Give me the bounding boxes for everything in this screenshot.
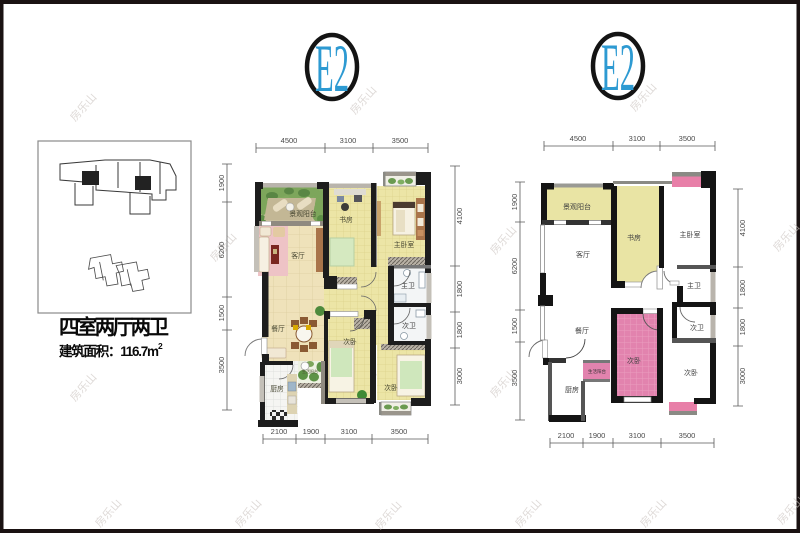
svg-text:厨房: 厨房 xyxy=(565,385,579,394)
svg-text:1900: 1900 xyxy=(217,175,226,192)
svg-text:主卫: 主卫 xyxy=(687,281,701,290)
svg-text:3000: 3000 xyxy=(455,368,464,385)
svg-text:次卧: 次卧 xyxy=(384,383,398,392)
svg-text:1900: 1900 xyxy=(589,431,606,440)
svg-text:主卧室: 主卧室 xyxy=(680,230,701,239)
svg-text:次卫: 次卫 xyxy=(690,323,704,332)
svg-text:3500: 3500 xyxy=(510,370,519,387)
svg-text:书房: 书房 xyxy=(339,215,353,224)
svg-text:3100: 3100 xyxy=(629,431,646,440)
svg-text:3100: 3100 xyxy=(340,136,357,145)
svg-text:主卫: 主卫 xyxy=(401,281,415,290)
svg-text:6200: 6200 xyxy=(510,258,519,275)
svg-text:3500: 3500 xyxy=(391,427,408,436)
svg-text:客厅: 客厅 xyxy=(576,250,590,259)
svg-text:6200: 6200 xyxy=(217,242,226,259)
svg-text:4100: 4100 xyxy=(738,220,747,237)
svg-text:次卧: 次卧 xyxy=(627,356,641,365)
svg-text:1800: 1800 xyxy=(738,319,747,336)
svg-text:E2: E2 xyxy=(315,32,349,107)
svg-text:3100: 3100 xyxy=(341,427,358,436)
svg-text:生活阳台: 生活阳台 xyxy=(302,368,318,374)
svg-text:2100: 2100 xyxy=(558,431,575,440)
svg-text:次卫: 次卫 xyxy=(402,321,416,330)
svg-text:3500: 3500 xyxy=(217,357,226,374)
svg-text:次卧: 次卧 xyxy=(343,337,357,346)
svg-text:E2: E2 xyxy=(601,31,635,106)
svg-text:3000: 3000 xyxy=(738,368,747,385)
svg-text:1900: 1900 xyxy=(303,427,320,436)
svg-text:次卧: 次卧 xyxy=(684,368,698,377)
svg-text:1500: 1500 xyxy=(217,305,226,322)
svg-text:客厅: 客厅 xyxy=(291,251,305,260)
svg-text:2: 2 xyxy=(158,341,163,351)
svg-text:四室两厅两卫: 四室两厅两卫 xyxy=(59,315,169,339)
svg-text:1800: 1800 xyxy=(738,280,747,297)
svg-text:主卧室: 主卧室 xyxy=(394,240,415,249)
svg-text:建筑面积：116.7m: 建筑面积：116.7m xyxy=(58,343,159,359)
svg-text:生活阳台: 生活阳台 xyxy=(588,368,606,375)
svg-text:景观阳台: 景观阳台 xyxy=(289,209,316,218)
svg-text:1500: 1500 xyxy=(510,318,519,335)
svg-text:3500: 3500 xyxy=(679,431,696,440)
svg-text:1800: 1800 xyxy=(455,322,464,339)
svg-text:餐厅: 餐厅 xyxy=(271,324,285,333)
svg-text:2100: 2100 xyxy=(271,427,288,436)
svg-text:书房: 书房 xyxy=(627,233,641,242)
svg-text:厨房: 厨房 xyxy=(270,384,284,393)
svg-text:4500: 4500 xyxy=(570,134,587,143)
svg-text:3100: 3100 xyxy=(629,134,646,143)
svg-text:餐厅: 餐厅 xyxy=(575,326,589,335)
svg-text:4500: 4500 xyxy=(281,136,298,145)
svg-text:景观阳台: 景观阳台 xyxy=(563,202,591,211)
svg-text:1900: 1900 xyxy=(510,194,519,211)
svg-text:4100: 4100 xyxy=(455,208,464,225)
svg-text:3500: 3500 xyxy=(392,136,409,145)
svg-text:3500: 3500 xyxy=(679,134,696,143)
svg-text:1800: 1800 xyxy=(455,281,464,298)
